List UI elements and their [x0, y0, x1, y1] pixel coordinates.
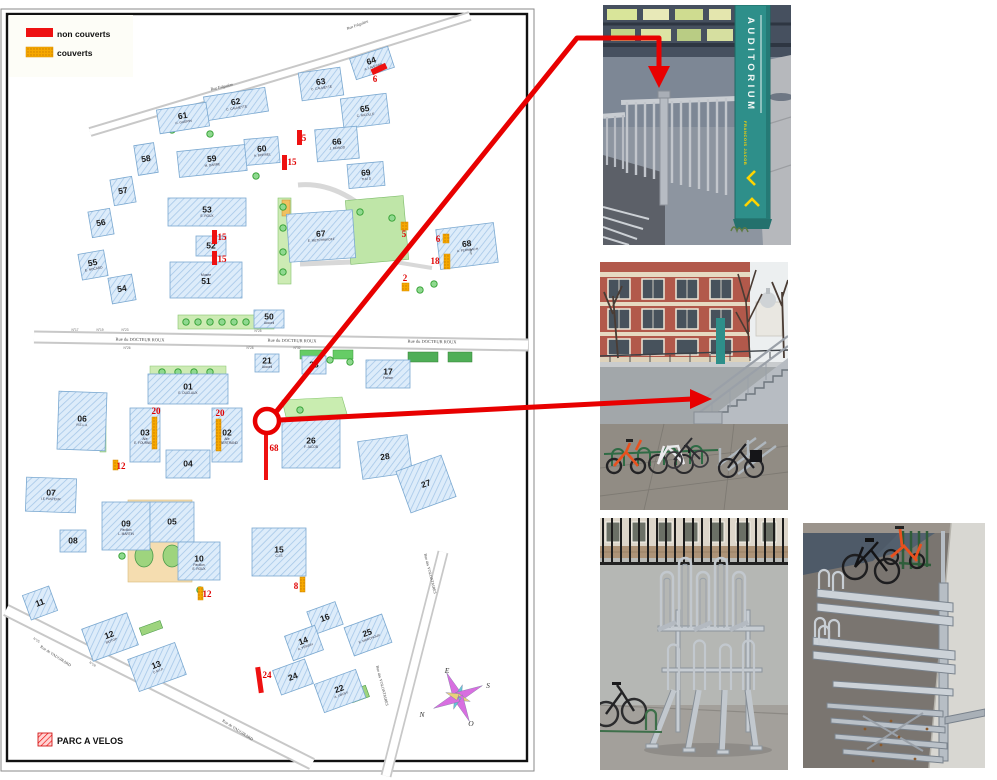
- building-15: 15C.I.S: [252, 528, 306, 576]
- building-58: 58: [134, 143, 158, 176]
- marker-orange-12: 12: [113, 460, 126, 471]
- building-69: 69THU D: [347, 161, 385, 188]
- street-number: N°25: [254, 329, 261, 333]
- tree-icon: [280, 269, 286, 275]
- tree-icon: [243, 319, 249, 325]
- svg-text:E. ROUX: E. ROUX: [200, 214, 214, 218]
- building-09: 09PavillonL. MARTIN: [102, 502, 150, 550]
- tree-icon: [253, 173, 259, 179]
- svg-text:02: 02: [222, 428, 232, 438]
- svg-text:51: 51: [201, 276, 211, 286]
- building-26: 26F. JACOB: [282, 418, 340, 468]
- photo-auditorium-svg: AUDITORIUM FRANCOIS JACOB: [603, 5, 791, 245]
- street-number: N°19: [96, 328, 103, 332]
- svg-text:18: 18: [431, 256, 441, 266]
- tree-icon: [119, 553, 125, 559]
- street-label: Rue du DOCTEUR ROUX: [115, 337, 165, 343]
- marker-red-5: 5: [297, 130, 307, 145]
- svg-text:50: 50: [264, 312, 274, 322]
- tree-icon: [280, 225, 286, 231]
- street-label: Rue du DOCTEUR ROUX: [407, 339, 457, 345]
- svg-text:2: 2: [403, 273, 408, 283]
- map-svg: 64A. LAVERAN63C. CALMETTE62C. CALMETTE61…: [0, 0, 540, 780]
- svg-text:5: 5: [402, 229, 407, 239]
- tree-icon: [207, 131, 213, 137]
- teal-column: [716, 318, 725, 364]
- svg-text:France: France: [383, 376, 393, 380]
- auditorium-sign: AUDITORIUM FRANCOIS JACOB: [733, 5, 772, 229]
- street-number: N°26: [123, 346, 130, 350]
- svg-text:15: 15: [218, 254, 228, 264]
- building-51: Musée51: [170, 262, 242, 298]
- svg-text:R.E.L.A: R.E.L.A: [76, 423, 88, 427]
- compass-letter-N: N: [418, 710, 425, 719]
- building-53: 53E. ROUX: [168, 198, 246, 226]
- svg-text:LE PASTEUR: LE PASTEUR: [41, 497, 61, 502]
- svg-text:15: 15: [218, 232, 228, 242]
- building-04: 04: [166, 450, 210, 478]
- svg-text:12: 12: [203, 589, 213, 599]
- parc-a-velos-swatch: [38, 733, 52, 746]
- tree-icon: [219, 319, 225, 325]
- tree-icon: [280, 204, 286, 210]
- campus-map: 64A. LAVERAN63C. CALMETTE62C. CALMETTE61…: [0, 0, 540, 780]
- building-50: 50Accueil: [254, 310, 284, 328]
- svg-text:56: 56: [95, 217, 106, 229]
- building-08: 08: [60, 530, 86, 552]
- auditorium-sign-title: AUDITORIUM: [745, 17, 756, 113]
- street-number: N°32: [293, 346, 300, 350]
- legend: non couverts couverts: [9, 15, 133, 77]
- svg-text:20: 20: [152, 406, 162, 416]
- photo-parking-svg: [600, 262, 788, 510]
- svg-text:Accueil: Accueil: [262, 365, 273, 369]
- tree-icon: [280, 249, 286, 255]
- building-07: 07LE PASTEUR: [25, 477, 76, 513]
- svg-text:09: 09: [121, 519, 131, 529]
- tree-icon: [347, 359, 353, 365]
- legend-label-couverts: couverts: [57, 48, 93, 58]
- svg-text:15: 15: [274, 545, 284, 555]
- building-01: 01E. DUCLAUX: [148, 374, 228, 404]
- auditorium-sign-subtitle: FRANCOIS JACOB: [743, 121, 748, 165]
- photo-rack-front-svg: [600, 518, 788, 770]
- tree-icon: [297, 407, 303, 413]
- svg-text:C.I.S: C.I.S: [275, 554, 282, 558]
- photo-bike-parking-stairs: [600, 262, 788, 510]
- building-56: 56: [88, 208, 114, 237]
- svg-text:57: 57: [117, 185, 128, 197]
- svg-text:21: 21: [262, 356, 272, 366]
- building-65: 65C. NICOLLE: [340, 93, 389, 128]
- building-55: 55E. NOCARD: [78, 250, 108, 280]
- svg-text:10: 10: [194, 554, 204, 564]
- brick-building: [600, 262, 750, 364]
- street-label: Rue du DOCTEUR ROUX: [267, 338, 317, 344]
- building-21: 21Accueil: [255, 354, 279, 372]
- svg-text:53: 53: [202, 205, 212, 215]
- svg-text:54: 54: [116, 283, 127, 295]
- svg-text:E. DUCLAUX: E. DUCLAUX: [178, 391, 198, 395]
- svg-text:15: 15: [288, 157, 298, 167]
- street-number: N°23: [121, 328, 128, 332]
- svg-text:6: 6: [436, 234, 441, 244]
- building-67: 67E. METCHNIKOFF: [286, 210, 355, 262]
- svg-text:08: 08: [68, 536, 78, 546]
- svg-text:8: 8: [294, 581, 299, 591]
- marker-red-15: 15: [212, 251, 227, 265]
- svg-text:58: 58: [140, 153, 151, 164]
- marker-red-15: 15: [212, 230, 227, 244]
- building-05: 05: [150, 502, 194, 542]
- building-60: 60A. BORREL: [244, 137, 280, 166]
- tree-icon: [389, 215, 395, 221]
- street-number: N°17: [71, 328, 78, 332]
- photo-rack-side-svg: [803, 523, 985, 768]
- svg-text:24: 24: [263, 670, 273, 680]
- building-06: 06R.E.L.A: [57, 391, 107, 451]
- svg-text:12: 12: [117, 461, 127, 471]
- svg-text:F. JACOB: F. JACOB: [304, 445, 318, 449]
- svg-text:05: 05: [167, 517, 177, 527]
- svg-text:28: 28: [380, 451, 391, 462]
- photo-auditorium-stairs: AUDITORIUM FRANCOIS JACOB: [603, 5, 791, 245]
- building-66: 66J. MONOD: [315, 126, 360, 162]
- tree-icon: [327, 357, 333, 363]
- svg-text:23: 23: [309, 360, 319, 370]
- building-17: 17France: [366, 360, 410, 388]
- svg-text:6: 6: [373, 74, 378, 84]
- marker-orange-12: 12: [198, 587, 212, 600]
- street-number: N°28: [246, 346, 253, 350]
- building-23: 23: [302, 356, 326, 374]
- building-57: 57: [110, 176, 136, 205]
- legend-label-non-couverts: non couverts: [57, 29, 111, 39]
- tree-icon: [231, 319, 237, 325]
- tree-icon: [417, 287, 423, 293]
- tree-icon: [195, 319, 201, 325]
- svg-text:L. MARTIN: L. MARTIN: [118, 532, 134, 536]
- parc-a-velos-label: PARC A VELOS: [57, 736, 123, 746]
- compass-letter-S: S: [486, 681, 490, 690]
- svg-text:03: 03: [140, 428, 150, 438]
- svg-text:20: 20: [216, 408, 226, 418]
- photo-rack-side: [803, 523, 985, 768]
- svg-text:26: 26: [306, 436, 316, 446]
- compass-letter-O: O: [468, 719, 474, 728]
- photo-rack-front: [600, 518, 788, 770]
- tree-icon: [357, 209, 363, 215]
- legend-swatch-non-couverts: [26, 28, 53, 37]
- building-63: 63C. CALMETTE: [298, 67, 343, 101]
- svg-text:68: 68: [270, 443, 280, 453]
- svg-text:E. ROUX: E. ROUX: [192, 567, 206, 571]
- building-54: 54: [108, 274, 136, 304]
- building-10: 10PavillonE. ROUX: [178, 542, 220, 580]
- svg-text:Accueil: Accueil: [264, 321, 275, 325]
- floor: [600, 424, 788, 510]
- svg-text:5: 5: [302, 133, 307, 143]
- compass-letter-E: E: [444, 666, 450, 675]
- svg-text:04: 04: [183, 459, 193, 469]
- tree-icon: [431, 281, 437, 287]
- svg-text:01: 01: [183, 382, 193, 392]
- svg-text:17: 17: [383, 367, 393, 377]
- tree-icon: [183, 319, 189, 325]
- legend-swatch-couverts: [26, 47, 53, 57]
- legend-panel: [9, 15, 133, 77]
- tree-icon: [207, 319, 213, 325]
